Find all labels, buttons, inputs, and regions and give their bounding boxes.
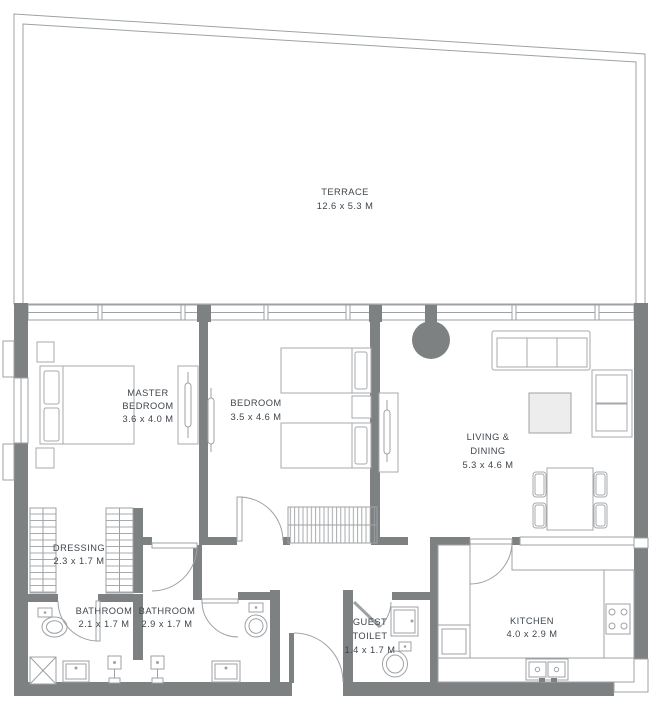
master-bedroom-furniture [36,342,198,468]
living-dining-label-1: LIVING & [467,432,510,442]
master-bedroom-label-1: MASTER [127,388,168,398]
dining-chair-seat [535,474,544,495]
bathroom-master-label: BATHROOM [76,606,133,616]
counter-edge [512,545,604,570]
armchair-cushion [596,404,627,431]
bathroom-second-dims: 2.9 x 1.7 M [142,619,193,629]
exterior-unit [3,444,14,480]
tall-cabinet [438,545,470,625]
window-band [28,305,634,322]
guest-toilet-label-2: TOILET [352,631,387,641]
fridge-inner [442,629,466,654]
entrance-door [289,633,343,683]
pillow [44,371,59,404]
living-dining-label-2: DINING [470,446,505,456]
bedroom-dims: 3.5 x 4.6 M [231,412,282,422]
bedroom-label: BEDROOM [230,398,281,408]
sliding-door-handle [185,383,191,427]
dressing-label: DRESSING [53,543,105,553]
stove [606,604,630,634]
terrace-dims: 12.6 x 5.3 M [317,201,374,211]
bathroom-master-dims: 2.1 x 1.7 M [79,619,130,629]
master-bedroom-label-2: BEDROOM [122,401,173,411]
nightstand [37,342,54,362]
dressing-dims: 2.3 x 1.7 M [54,556,105,566]
pillow [355,352,367,389]
floor-plan-page: TERRACE 12.6 x 5.3 M MASTER BEDROOM 3.6 … [0,0,661,712]
coffee-table [529,393,571,433]
bathroom-second-door [202,599,238,637]
terrace-outline [14,14,645,304]
vanity-basin [66,664,86,679]
pillow [355,427,367,464]
kitchen-pass-counter [520,537,634,545]
structural-column [412,321,450,359]
band-mullion-block [425,305,437,322]
living-dining-dims: 5.3 x 4.6 M [463,460,514,470]
dining-table [547,468,593,530]
kitchen-label: KITCHEN [510,616,554,626]
shower-base [109,678,120,683]
kitchen-fixtures [438,545,634,682]
sliding-door-handle [384,410,390,454]
band-mullion-block [369,305,382,322]
dining-chair-seat [596,474,605,495]
master-bedroom-dims: 3.6 x 4.0 M [123,414,174,424]
dining-chair-seat [535,505,544,526]
floor-plan-drawing: TERRACE 12.6 x 5.3 M MASTER BEDROOM 3.6 … [0,0,661,712]
living-dining-furniture [492,331,632,530]
exterior-unit [3,341,14,377]
sink-basin [548,662,565,677]
sofa-seats [497,338,587,367]
sink-basin [529,662,546,677]
sliding-door-handle [208,398,214,444]
nightstand [36,448,54,468]
dining-chair-seat [596,505,605,526]
vanity-basin [215,664,237,679]
guest-toilet-label-1: GUEST [353,617,387,627]
kitchen-door [470,539,512,584]
guest-toilet-fixtures [383,607,419,677]
bathroom-second-label: BATHROOM [139,606,196,616]
nightstand [352,396,371,418]
shower-base [152,678,163,683]
band-mullion-block [197,305,211,322]
pillow [44,408,59,441]
master-suite-door [152,543,197,591]
bedroom-door [237,497,283,541]
kitchen-dims: 4.0 x 2.9 M [507,629,558,639]
guest-toilet-dims: 1.4 x 1.7 M [345,645,396,655]
terrace-label: TERRACE [321,187,369,197]
armchair-cushion [596,375,627,403]
right-wall-window [634,538,648,548]
